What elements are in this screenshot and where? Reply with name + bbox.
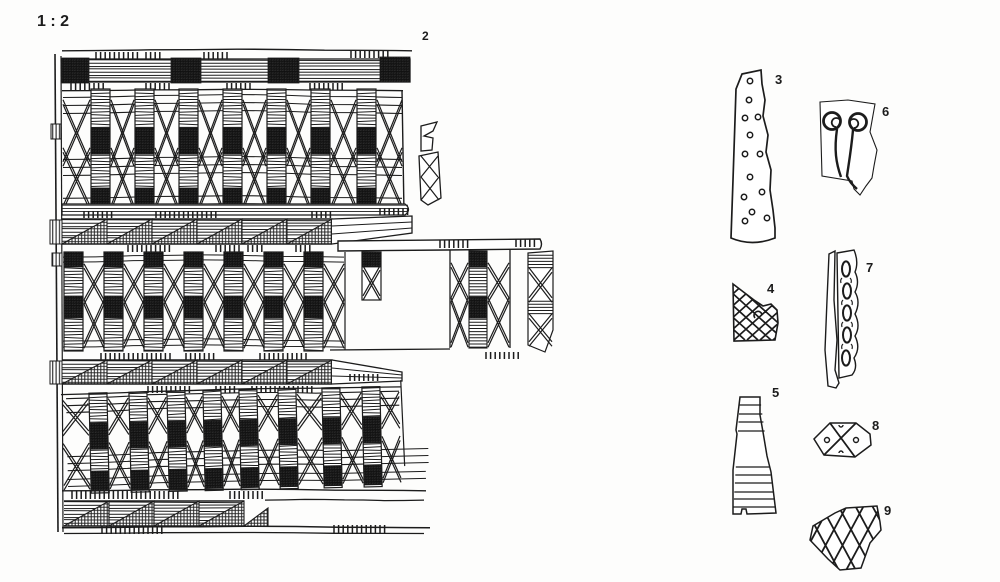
svg-text:9: 9 (884, 503, 891, 518)
svg-text:6: 6 (882, 104, 889, 119)
svg-text:4: 4 (767, 281, 775, 296)
svg-text:7: 7 (866, 260, 873, 275)
svg-text:8: 8 (872, 418, 879, 433)
svg-text:5: 5 (772, 385, 779, 400)
svg-text:2: 2 (422, 29, 429, 43)
svg-text:3: 3 (775, 72, 782, 87)
svg-text:1 : 2: 1 : 2 (37, 13, 69, 30)
